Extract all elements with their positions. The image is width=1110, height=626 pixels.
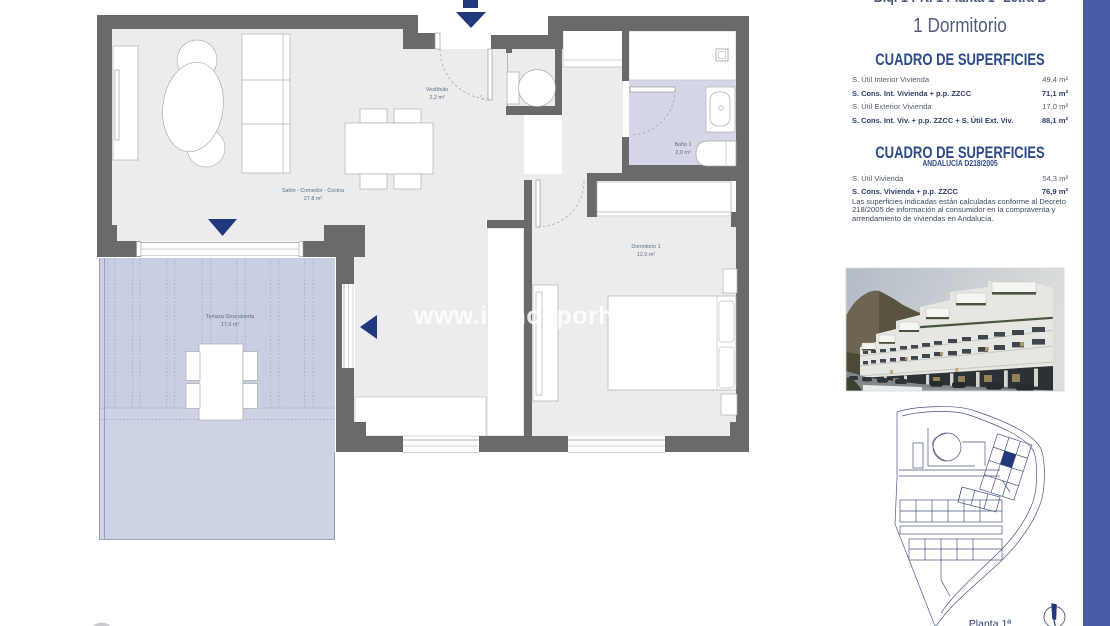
svg-text:Terraza Descubierta: Terraza Descubierta bbox=[206, 314, 254, 320]
svg-text:2,2 m²: 2,2 m² bbox=[429, 95, 444, 101]
svg-text:Dormitorio 1: Dormitorio 1 bbox=[631, 244, 660, 250]
svg-text:Vestíbulo: Vestíbulo bbox=[426, 87, 448, 93]
svg-text:2,0 m²: 2,0 m² bbox=[675, 150, 690, 156]
svg-text:12,0 m²: 12,0 m² bbox=[637, 252, 655, 258]
svg-text:17,0 m²: 17,0 m² bbox=[221, 322, 239, 328]
svg-text:Salón - Comedor - Cocina: Salón - Comedor - Cocina bbox=[282, 188, 344, 194]
svg-text:27,8 m²: 27,8 m² bbox=[304, 196, 322, 202]
svg-text:Baño 1: Baño 1 bbox=[674, 142, 691, 148]
